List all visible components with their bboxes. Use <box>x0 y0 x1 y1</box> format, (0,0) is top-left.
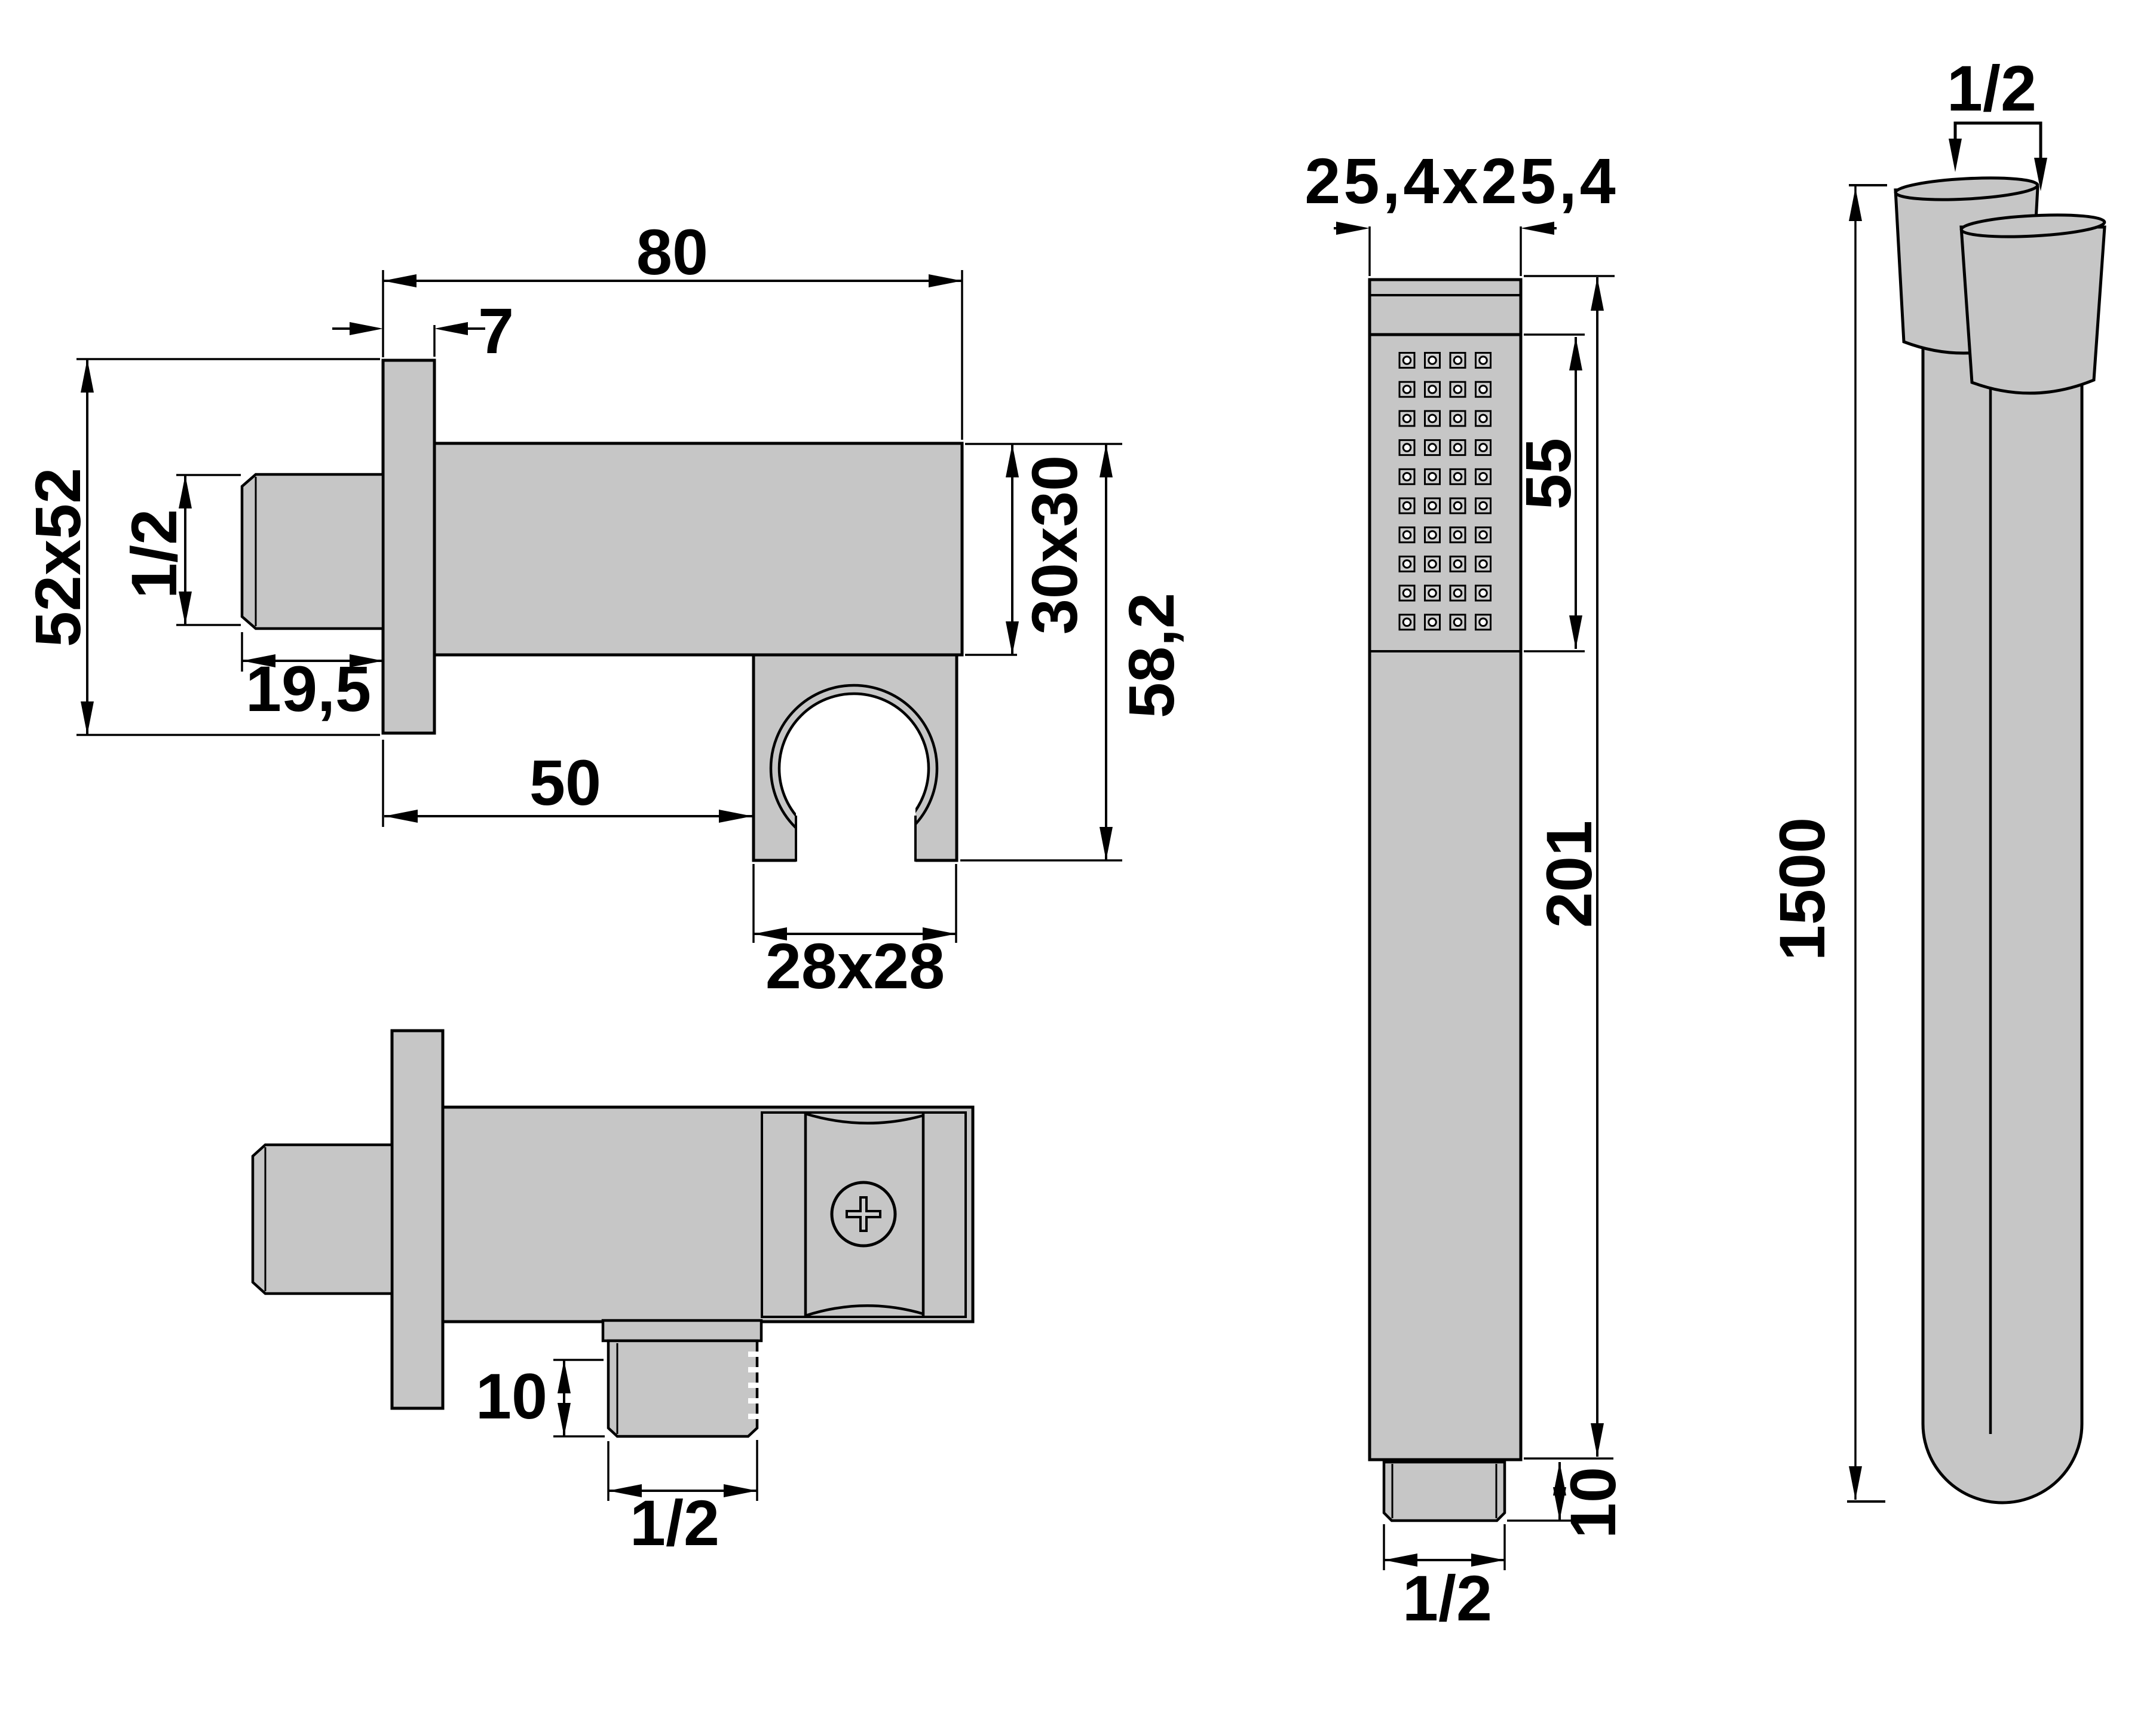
svg-text:1/2: 1/2 <box>118 509 190 599</box>
svg-text:1500: 1500 <box>1766 817 1838 961</box>
svg-text:55: 55 <box>1512 438 1584 510</box>
svg-text:28x28: 28x28 <box>765 930 945 1002</box>
svg-text:80: 80 <box>636 216 708 288</box>
svg-text:10: 10 <box>476 1360 547 1432</box>
svg-text:1/2: 1/2 <box>1947 52 2036 124</box>
svg-text:10: 10 <box>1557 1467 1629 1539</box>
svg-text:201: 201 <box>1533 820 1605 928</box>
svg-text:1/2: 1/2 <box>1402 1562 1492 1634</box>
svg-text:19,5: 19,5 <box>246 652 371 725</box>
svg-text:7: 7 <box>478 295 514 367</box>
svg-text:25,4x25,4: 25,4x25,4 <box>1304 145 1618 217</box>
svg-text:30x30: 30x30 <box>1018 455 1091 635</box>
svg-text:50: 50 <box>529 746 601 819</box>
svg-text:52x52: 52x52 <box>22 468 94 647</box>
svg-text:1/2: 1/2 <box>630 1487 719 1559</box>
svg-text:58,2: 58,2 <box>1115 593 1187 718</box>
